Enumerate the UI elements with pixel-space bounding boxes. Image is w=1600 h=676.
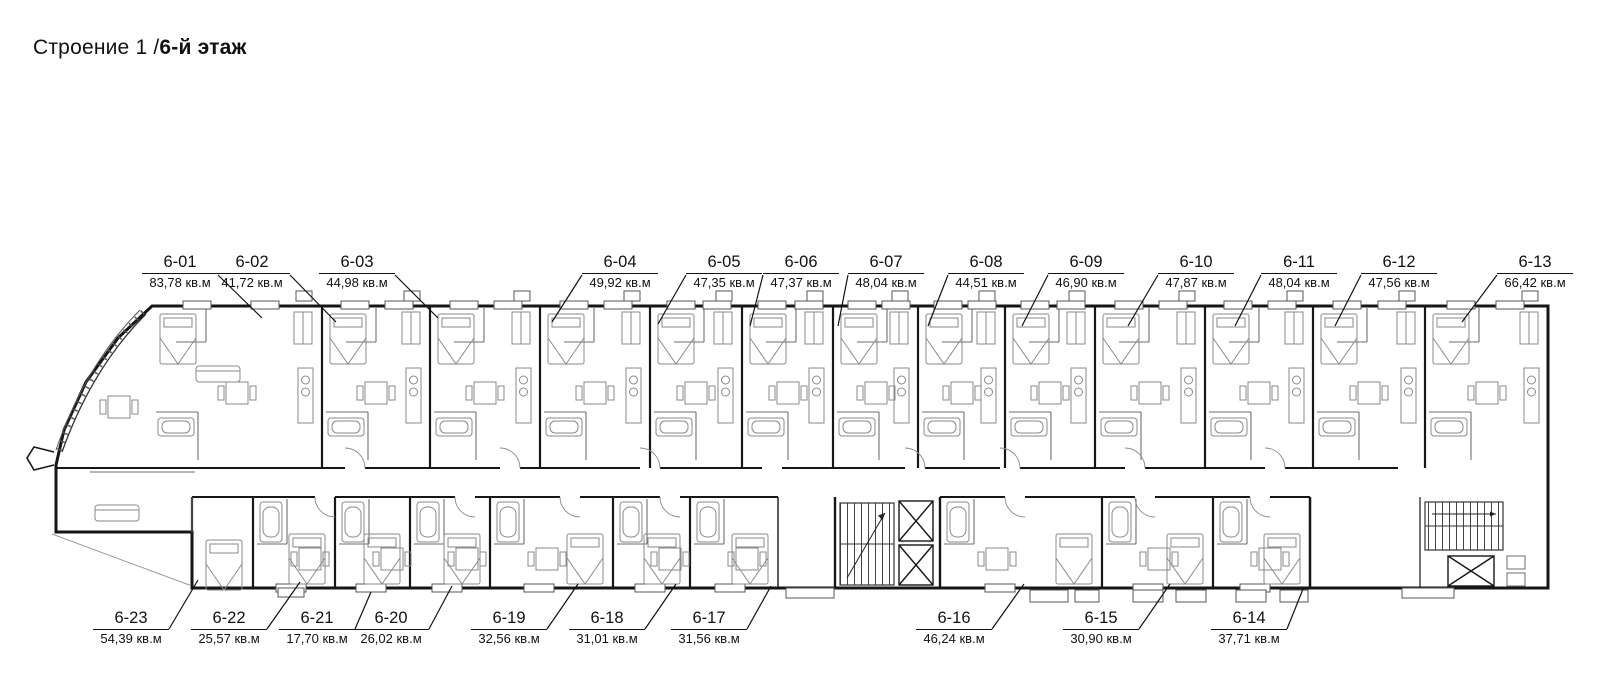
unit-id: 6-03: [319, 253, 395, 274]
unit-area: 49,92 кв.м: [582, 274, 658, 291]
unit-id: 6-12: [1361, 253, 1437, 274]
unit-label-6-19: 6-1932,56 кв.м: [471, 609, 547, 647]
unit-area: 32,56 кв.м: [471, 630, 547, 647]
unit-area: 83,78 кв.м: [142, 274, 218, 291]
unit-id: 6-15: [1063, 609, 1139, 630]
unit-id: 6-19: [471, 609, 547, 630]
unit-area: 47,56 кв.м: [1361, 274, 1437, 291]
unit-area: 41,72 кв.м: [214, 274, 290, 291]
unit-label-6-08: 6-0844,51 кв.м: [948, 253, 1024, 291]
unit-area: 44,98 кв.м: [319, 274, 395, 291]
left-facade-glazing: [56, 310, 146, 452]
unit-id: 6-04: [582, 253, 658, 274]
unit-label-6-12: 6-1247,56 кв.м: [1361, 253, 1437, 291]
unit-label-6-06: 6-0647,37 кв.м: [763, 253, 839, 291]
unit-area: 44,51 кв.м: [948, 274, 1024, 291]
unit-label-6-16: 6-1646,24 кв.м: [916, 609, 992, 647]
unit-id: 6-02: [214, 253, 290, 274]
unit-area: 30,90 кв.м: [1063, 630, 1139, 647]
unit-id: 6-01: [142, 253, 218, 274]
unit-area: 25,57 кв.м: [191, 630, 267, 647]
unit-id: 6-16: [916, 609, 992, 630]
unit-area: 54,39 кв.м: [93, 630, 169, 647]
unit-label-6-07: 6-0748,04 кв.м: [848, 253, 924, 291]
unit-area: 47,87 кв.м: [1158, 274, 1234, 291]
unit-id: 6-07: [848, 253, 924, 274]
unit-area: 37,71 кв.м: [1211, 630, 1287, 647]
unit-area: 46,90 кв.м: [1048, 274, 1124, 291]
unit-id: 6-10: [1158, 253, 1234, 274]
floor-plan-drawing: [0, 0, 1600, 676]
unit-area: 26,02 кв.м: [353, 630, 429, 647]
unit-area: 17,70 кв.м: [279, 630, 355, 647]
unit-label-6-03: 6-0344,98 кв.м: [319, 253, 395, 291]
unit-area: 66,42 кв.м: [1497, 274, 1573, 291]
unit-id: 6-20: [353, 609, 429, 630]
unit-id: 6-06: [763, 253, 839, 274]
door-arcs: [315, 448, 1285, 517]
unit-id: 6-17: [671, 609, 747, 630]
unit-id: 6-09: [1048, 253, 1124, 274]
unit-label-6-21: 6-2117,70 кв.м: [279, 609, 355, 647]
left-balcony-hook: [27, 447, 54, 470]
unit-id: 6-13: [1497, 253, 1573, 274]
unit-partitions: [192, 306, 1425, 588]
unit-label-6-23: 6-2354,39 кв.м: [93, 609, 169, 647]
unit-label-6-18: 6-1831,01 кв.м: [569, 609, 645, 647]
unit-label-6-22: 6-2225,57 кв.м: [191, 609, 267, 647]
stair-core-right: [1310, 497, 1525, 588]
unit-id: 6-08: [948, 253, 1024, 274]
unit-area: 46,24 кв.м: [916, 630, 992, 647]
unit-label-6-05: 6-0547,35 кв.м: [686, 253, 762, 291]
unit-label-6-14: 6-1437,71 кв.м: [1211, 609, 1287, 647]
unit-area: 48,04 кв.м: [1261, 274, 1337, 291]
unit-label-6-02: 6-0241,72 кв.м: [214, 253, 290, 291]
elevator-shaft: [1448, 556, 1494, 586]
unit-label-6-10: 6-1047,87 кв.м: [1158, 253, 1234, 291]
unit-area: 48,04 кв.м: [848, 274, 924, 291]
unit-id: 6-18: [569, 609, 645, 630]
unit-label-6-17: 6-1731,56 кв.м: [671, 609, 747, 647]
unit-id: 6-21: [279, 609, 355, 630]
terrace-edge: [52, 534, 192, 586]
unit-label-6-09: 6-0946,90 кв.м: [1048, 253, 1124, 291]
unit-label-6-04: 6-0449,92 кв.м: [582, 253, 658, 291]
unit-area: 31,01 кв.м: [569, 630, 645, 647]
unit-id: 6-22: [191, 609, 267, 630]
unit-id: 6-05: [686, 253, 762, 274]
unit-id: 6-14: [1211, 609, 1287, 630]
elevator-shafts: [899, 501, 933, 585]
unit-label-6-11: 6-1148,04 кв.м: [1261, 253, 1337, 291]
unit-label-6-01: 6-0183,78 кв.м: [142, 253, 218, 291]
unit-area: 31,56 кв.м: [671, 630, 747, 647]
furniture: [92, 312, 1539, 590]
unit-area: 47,35 кв.м: [686, 274, 762, 291]
corridor-walls: [56, 468, 1398, 497]
unit-id: 6-23: [93, 609, 169, 630]
unit-area: 47,37 кв.м: [763, 274, 839, 291]
unit-id: 6-11: [1261, 253, 1337, 274]
unit-label-6-13: 6-1366,42 кв.м: [1497, 253, 1573, 291]
floor-plan-page: { "page": { "title_prefix": "Строение 1 …: [0, 0, 1600, 676]
stair-core-center: [778, 497, 940, 588]
unit-label-6-15: 6-1530,90 кв.м: [1063, 609, 1139, 647]
unit-label-6-20: 6-2026,02 кв.м: [353, 609, 429, 647]
